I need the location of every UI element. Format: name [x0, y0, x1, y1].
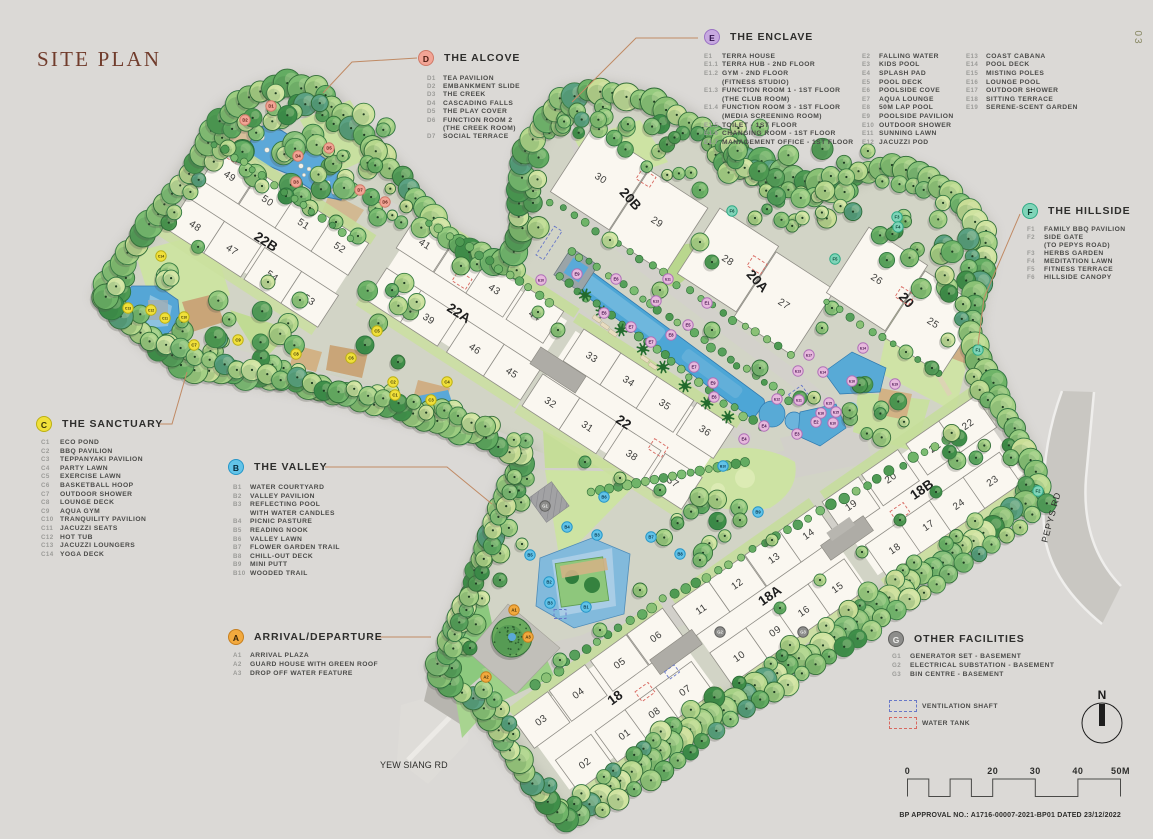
svg-text:E13: E13 — [653, 300, 659, 304]
svg-text:E5: E5 — [685, 323, 691, 328]
svg-text:E14: E14 — [820, 371, 826, 375]
svg-text:E2: E2 — [813, 420, 819, 425]
svg-text:F5: F5 — [833, 257, 839, 262]
svg-text:C6: C6 — [348, 356, 354, 361]
svg-text:E17: E17 — [806, 354, 812, 358]
svg-text:B4: B4 — [564, 525, 570, 530]
svg-text:40: 40 — [1072, 766, 1083, 776]
svg-text:E4: E4 — [741, 437, 747, 442]
svg-text:C13: C13 — [125, 307, 131, 311]
svg-text:D2: D2 — [242, 118, 248, 123]
svg-text:B2: B2 — [546, 580, 552, 585]
svg-text:F1: F1 — [976, 348, 982, 353]
svg-text:D3: D3 — [293, 180, 299, 185]
svg-text:E8: E8 — [668, 333, 674, 338]
svg-text:50M: 50M — [1111, 766, 1130, 776]
svg-text:E7: E7 — [648, 340, 654, 345]
svg-text:D7: D7 — [357, 188, 363, 193]
svg-text:E6: E6 — [613, 277, 619, 282]
svg-text:G3: G3 — [800, 630, 806, 635]
svg-text:B6: B6 — [601, 495, 607, 500]
svg-text:A1: A1 — [511, 608, 517, 613]
svg-text:F6: F6 — [730, 209, 736, 214]
svg-text:E6: E6 — [711, 395, 717, 400]
svg-text:YEW SIANG RD: YEW SIANG RD — [380, 760, 448, 770]
svg-text:C11: C11 — [162, 317, 168, 321]
svg-text:C7: C7 — [191, 343, 197, 348]
svg-text:D6: D6 — [382, 200, 388, 205]
svg-text:20: 20 — [987, 766, 998, 776]
svg-text:B8: B8 — [677, 552, 683, 557]
svg-text:30: 30 — [1030, 766, 1041, 776]
svg-text:D5: D5 — [326, 146, 332, 151]
svg-text:E12: E12 — [774, 398, 780, 402]
svg-text:C12: C12 — [148, 309, 154, 313]
svg-text:C14: C14 — [158, 255, 164, 259]
svg-text:C10: C10 — [181, 316, 187, 320]
svg-text:B3: B3 — [547, 601, 553, 606]
svg-text:C5: C5 — [374, 329, 380, 334]
svg-text:C8: C8 — [293, 352, 299, 357]
svg-text:E15: E15 — [833, 411, 839, 415]
svg-text:E4: E4 — [761, 424, 767, 429]
svg-text:03: 03 — [1132, 30, 1143, 45]
svg-text:F2: F2 — [1036, 489, 1042, 494]
svg-text:B10: B10 — [720, 465, 726, 469]
svg-text:A3: A3 — [525, 635, 531, 640]
svg-text:C1: C1 — [392, 393, 398, 398]
svg-text:G2: G2 — [717, 630, 723, 635]
svg-text:B9: B9 — [755, 510, 761, 515]
svg-text:E10: E10 — [538, 279, 544, 283]
svg-text:E11: E11 — [665, 278, 671, 282]
svg-text:B1: B1 — [583, 605, 589, 610]
svg-text:N: N — [1098, 688, 1107, 702]
svg-text:C4: C4 — [444, 380, 450, 385]
svg-text:D1: D1 — [268, 104, 274, 109]
svg-text:E9: E9 — [710, 381, 716, 386]
svg-text:E19: E19 — [892, 383, 898, 387]
svg-text:E11: E11 — [796, 399, 802, 403]
svg-text:E16: E16 — [849, 380, 855, 384]
svg-text:E15: E15 — [826, 402, 832, 406]
svg-text:F3: F3 — [895, 215, 901, 220]
svg-text:BP APPROVAL NO.: A1716-00007-2: BP APPROVAL NO.: A1716-00007-2021-BP01 D… — [899, 812, 1121, 819]
svg-text:E10: E10 — [830, 422, 836, 426]
svg-text:C2: C2 — [390, 380, 396, 385]
svg-text:B7: B7 — [648, 535, 654, 540]
svg-text:C3: C3 — [428, 398, 434, 403]
svg-text:E14: E14 — [860, 347, 866, 351]
svg-text:E9: E9 — [574, 272, 580, 277]
svg-text:E6: E6 — [601, 311, 607, 316]
svg-text:E1: E1 — [704, 301, 710, 306]
svg-text:B5: B5 — [527, 553, 533, 558]
svg-text:G1: G1 — [542, 504, 548, 509]
svg-text:E16: E16 — [818, 412, 824, 416]
svg-text:E7: E7 — [691, 365, 697, 370]
svg-text:C9: C9 — [235, 338, 241, 343]
svg-text:F4: F4 — [896, 225, 902, 230]
svg-text:0: 0 — [905, 766, 911, 776]
svg-text:D4: D4 — [295, 154, 301, 159]
svg-text:E7: E7 — [628, 325, 634, 330]
svg-text:E13: E13 — [795, 370, 801, 374]
svg-text:B3: B3 — [594, 533, 600, 538]
svg-text:A2: A2 — [483, 675, 489, 680]
svg-text:E3: E3 — [794, 432, 800, 437]
